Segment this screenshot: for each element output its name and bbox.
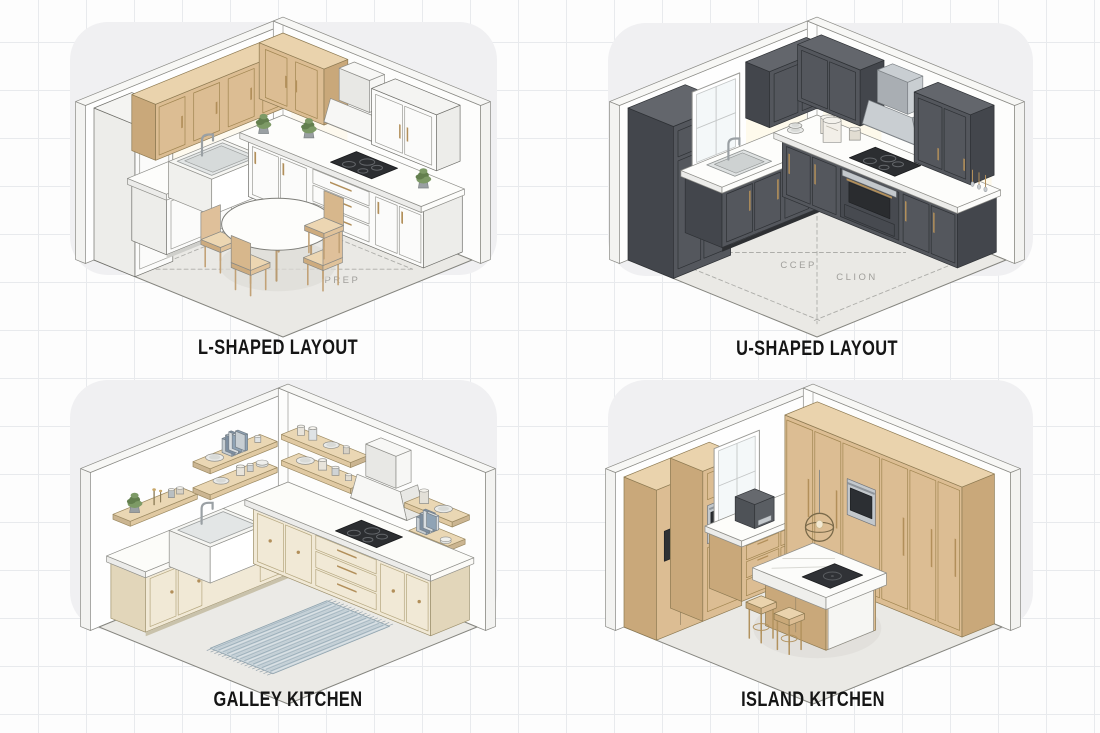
panel-label-island: ISLAND KITCHEN — [673, 688, 954, 712]
panel-label-galley: GALLEY KITCHEN — [148, 688, 429, 712]
island-kitchen-illustration — [578, 370, 1048, 715]
panel-label-u-shaped: U-SHAPED LAYOUT — [677, 337, 958, 361]
isometric-room — [606, 384, 1021, 704]
svg-text:PREP: PREP — [324, 275, 360, 286]
isometric-room: PREP — [76, 17, 491, 337]
kitchen-layouts-figure: PREP CCEPCLION L-SHAPED LAYOUT U-SHAPED … — [0, 0, 1100, 733]
l-shaped-kitchen-illustration: PREP — [48, 3, 518, 348]
svg-text:CCEP: CCEP — [780, 260, 816, 271]
u-shaped-kitchen-illustration: CCEPCLION — [582, 3, 1052, 348]
galley-kitchen-illustration — [53, 370, 523, 715]
panel-label-l-shaped: L-SHAPED LAYOUT — [138, 336, 419, 360]
svg-text:CLION: CLION — [836, 272, 878, 283]
isometric-room: CCEPCLION — [610, 17, 1025, 337]
isometric-room — [81, 384, 496, 704]
